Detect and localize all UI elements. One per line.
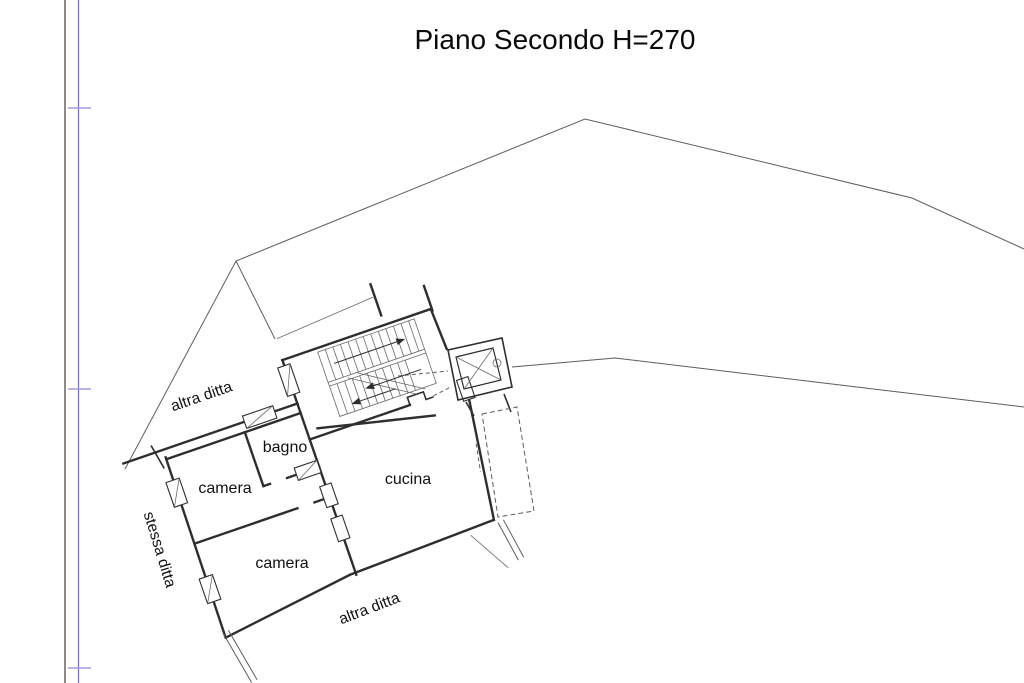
room-label-camera-upper: camera xyxy=(198,480,251,497)
boundary-label-altra-ditta-bottom: altra ditta xyxy=(337,589,403,628)
ruler-ticks xyxy=(68,108,91,668)
page-title: Piano Secondo H=270 xyxy=(415,24,696,55)
openings xyxy=(143,310,511,603)
apartment-walls xyxy=(94,264,539,683)
floor-plan-page: Piano Secondo H=270 xyxy=(0,0,1024,683)
boundary-label-altra-ditta-top: altra ditta xyxy=(169,378,235,415)
room-label-bagno: bagno xyxy=(263,439,308,456)
elevator xyxy=(448,338,512,416)
frame-margin-lines xyxy=(65,0,91,683)
room-label-cucina: cucina xyxy=(385,471,431,488)
room-label-camera-lower: camera xyxy=(255,555,308,572)
floor-plan-svg: Piano Secondo H=270 xyxy=(0,0,1024,683)
staircase xyxy=(318,319,438,420)
boundary-label-stessa-ditta: stessa ditta xyxy=(140,510,179,590)
